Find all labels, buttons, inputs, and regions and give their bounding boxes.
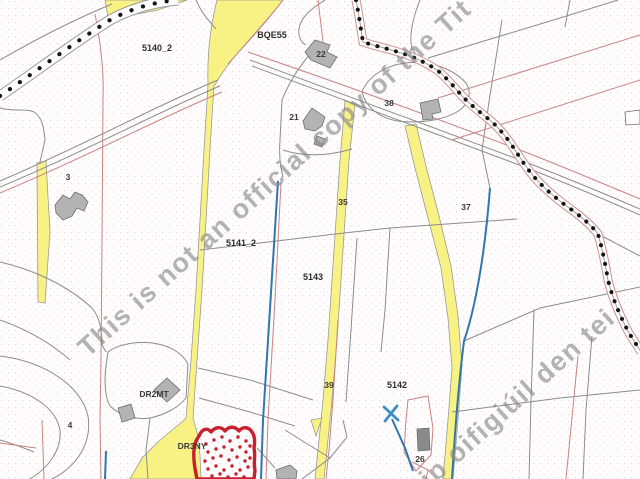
parcel-label: BQE55 xyxy=(257,30,287,40)
parcel-label: 5142 xyxy=(387,380,407,390)
parcel-label: DR3NY xyxy=(178,441,207,451)
parcel-label: DR2MT xyxy=(139,389,169,399)
parcel-label: 39 xyxy=(324,380,334,390)
parcel-label: 5140_2 xyxy=(142,43,172,53)
building-right-edge xyxy=(625,110,640,125)
blue-line-bottom-left xyxy=(105,451,106,479)
parcel-label: 3 xyxy=(66,172,71,182)
cadastral-map: 5140_2 BQE55 22 21 38 3 35 37 5141_2 514… xyxy=(0,0,640,479)
parcel-label: 5141_2 xyxy=(226,238,256,248)
stipple-texture xyxy=(0,0,640,479)
parcel-label: 22 xyxy=(316,49,326,59)
map-canvas: 5140_2 BQE55 22 21 38 3 35 37 5141_2 514… xyxy=(0,0,640,479)
parcel-label: 21 xyxy=(289,112,299,122)
parcel-label: 5143 xyxy=(303,272,323,282)
parcel-label: 38 xyxy=(384,98,394,108)
building-26 xyxy=(417,428,430,451)
parcel-label: 4 xyxy=(68,420,73,430)
parcel-label: 37 xyxy=(461,202,471,212)
parcel-label: 35 xyxy=(338,197,348,207)
